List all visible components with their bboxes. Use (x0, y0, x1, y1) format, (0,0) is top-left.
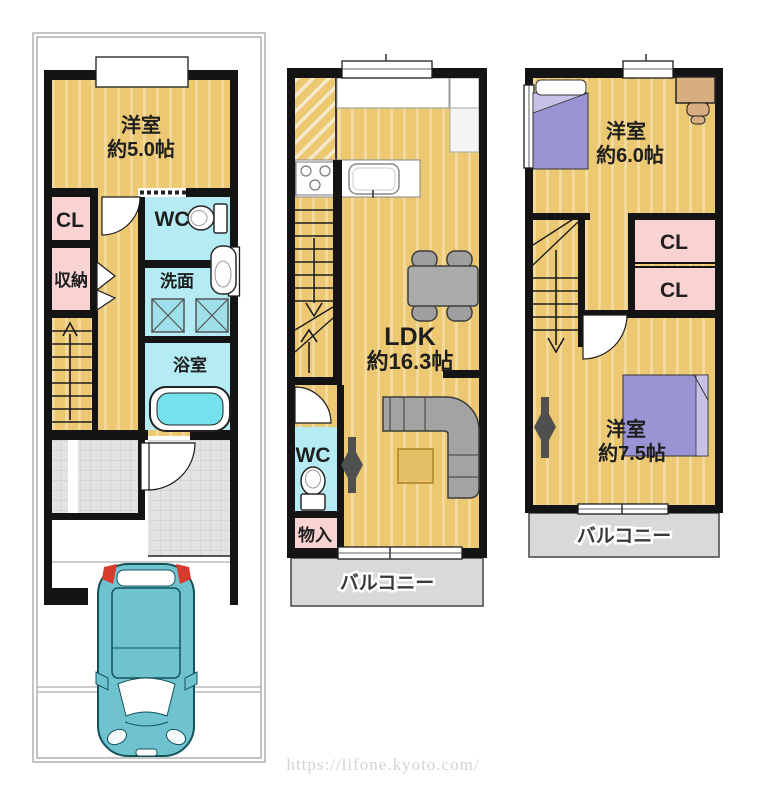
window-2f-top (342, 54, 432, 78)
label-2f-toilet: WC (296, 444, 331, 467)
label-3f-balcony: バルコニー (577, 525, 672, 547)
label-2f-ldk-size: 約16.3帖 (367, 349, 454, 374)
label-3f-room6-name: 洋室 (606, 119, 646, 143)
door-leaf-icon (141, 443, 149, 490)
void-hatch (295, 78, 335, 160)
label-2f-storage: 物入 (298, 525, 332, 545)
label-1f-closet: CL (56, 209, 84, 232)
window-3f-balcony (578, 504, 668, 514)
label-1f-bathroom: 浴室 (173, 355, 207, 375)
label-1f-western-room-size: 約5.0帖 (107, 137, 175, 161)
label-3f-room75-size: 約7.5帖 (598, 441, 666, 465)
label-1f-washroom: 洗面 (160, 271, 194, 291)
floor1-plan: 洋室 約5.0帖 CL WC 収納 洗面 浴室 (33, 33, 265, 762)
label-3f-room6-size: 約6.0帖 (596, 143, 664, 167)
label-1f-toilet: WC (155, 208, 190, 231)
label-1f-storage: 収納 (54, 270, 88, 290)
label-2f-balcony: バルコニー (340, 572, 435, 594)
window-2f-balcony (338, 547, 462, 559)
label-2f-ldk-name: LDK (384, 323, 435, 351)
toilet-icon (301, 467, 325, 510)
car-icon (96, 564, 197, 756)
entrance-step (68, 440, 78, 513)
window-3f-top (623, 54, 673, 78)
window-1f-top (96, 57, 188, 87)
chair-icon (687, 103, 709, 116)
washbasin-icon (211, 246, 236, 294)
stove-icon (296, 162, 338, 195)
entrance-tile-left (52, 440, 138, 513)
label-3f-room75-name: 洋室 (606, 417, 646, 441)
floor-plan-image: 洋室 約5.0帖 CL WC 収納 洗面 浴室 (0, 0, 760, 800)
toilet-icon (188, 204, 227, 233)
rug-icon (398, 449, 433, 483)
kitchen-sink-icon (349, 164, 399, 198)
floor3-plan: 洋室 約6.0帖 CL CL 洋室 約7.5帖 バルコニー (524, 54, 723, 557)
bathtub-icon (150, 387, 230, 431)
label-3f-closet-lower: CL (660, 279, 688, 302)
floor2-plan: LDK 約16.3帖 WC 物入 バルコニー (287, 54, 487, 606)
label-1f-western-room-name: 洋室 (121, 113, 161, 137)
watermark-text: https://lifone.kyoto.com/ (286, 755, 479, 774)
label-3f-closet-upper: CL (660, 231, 688, 254)
bed-icon (533, 80, 588, 169)
